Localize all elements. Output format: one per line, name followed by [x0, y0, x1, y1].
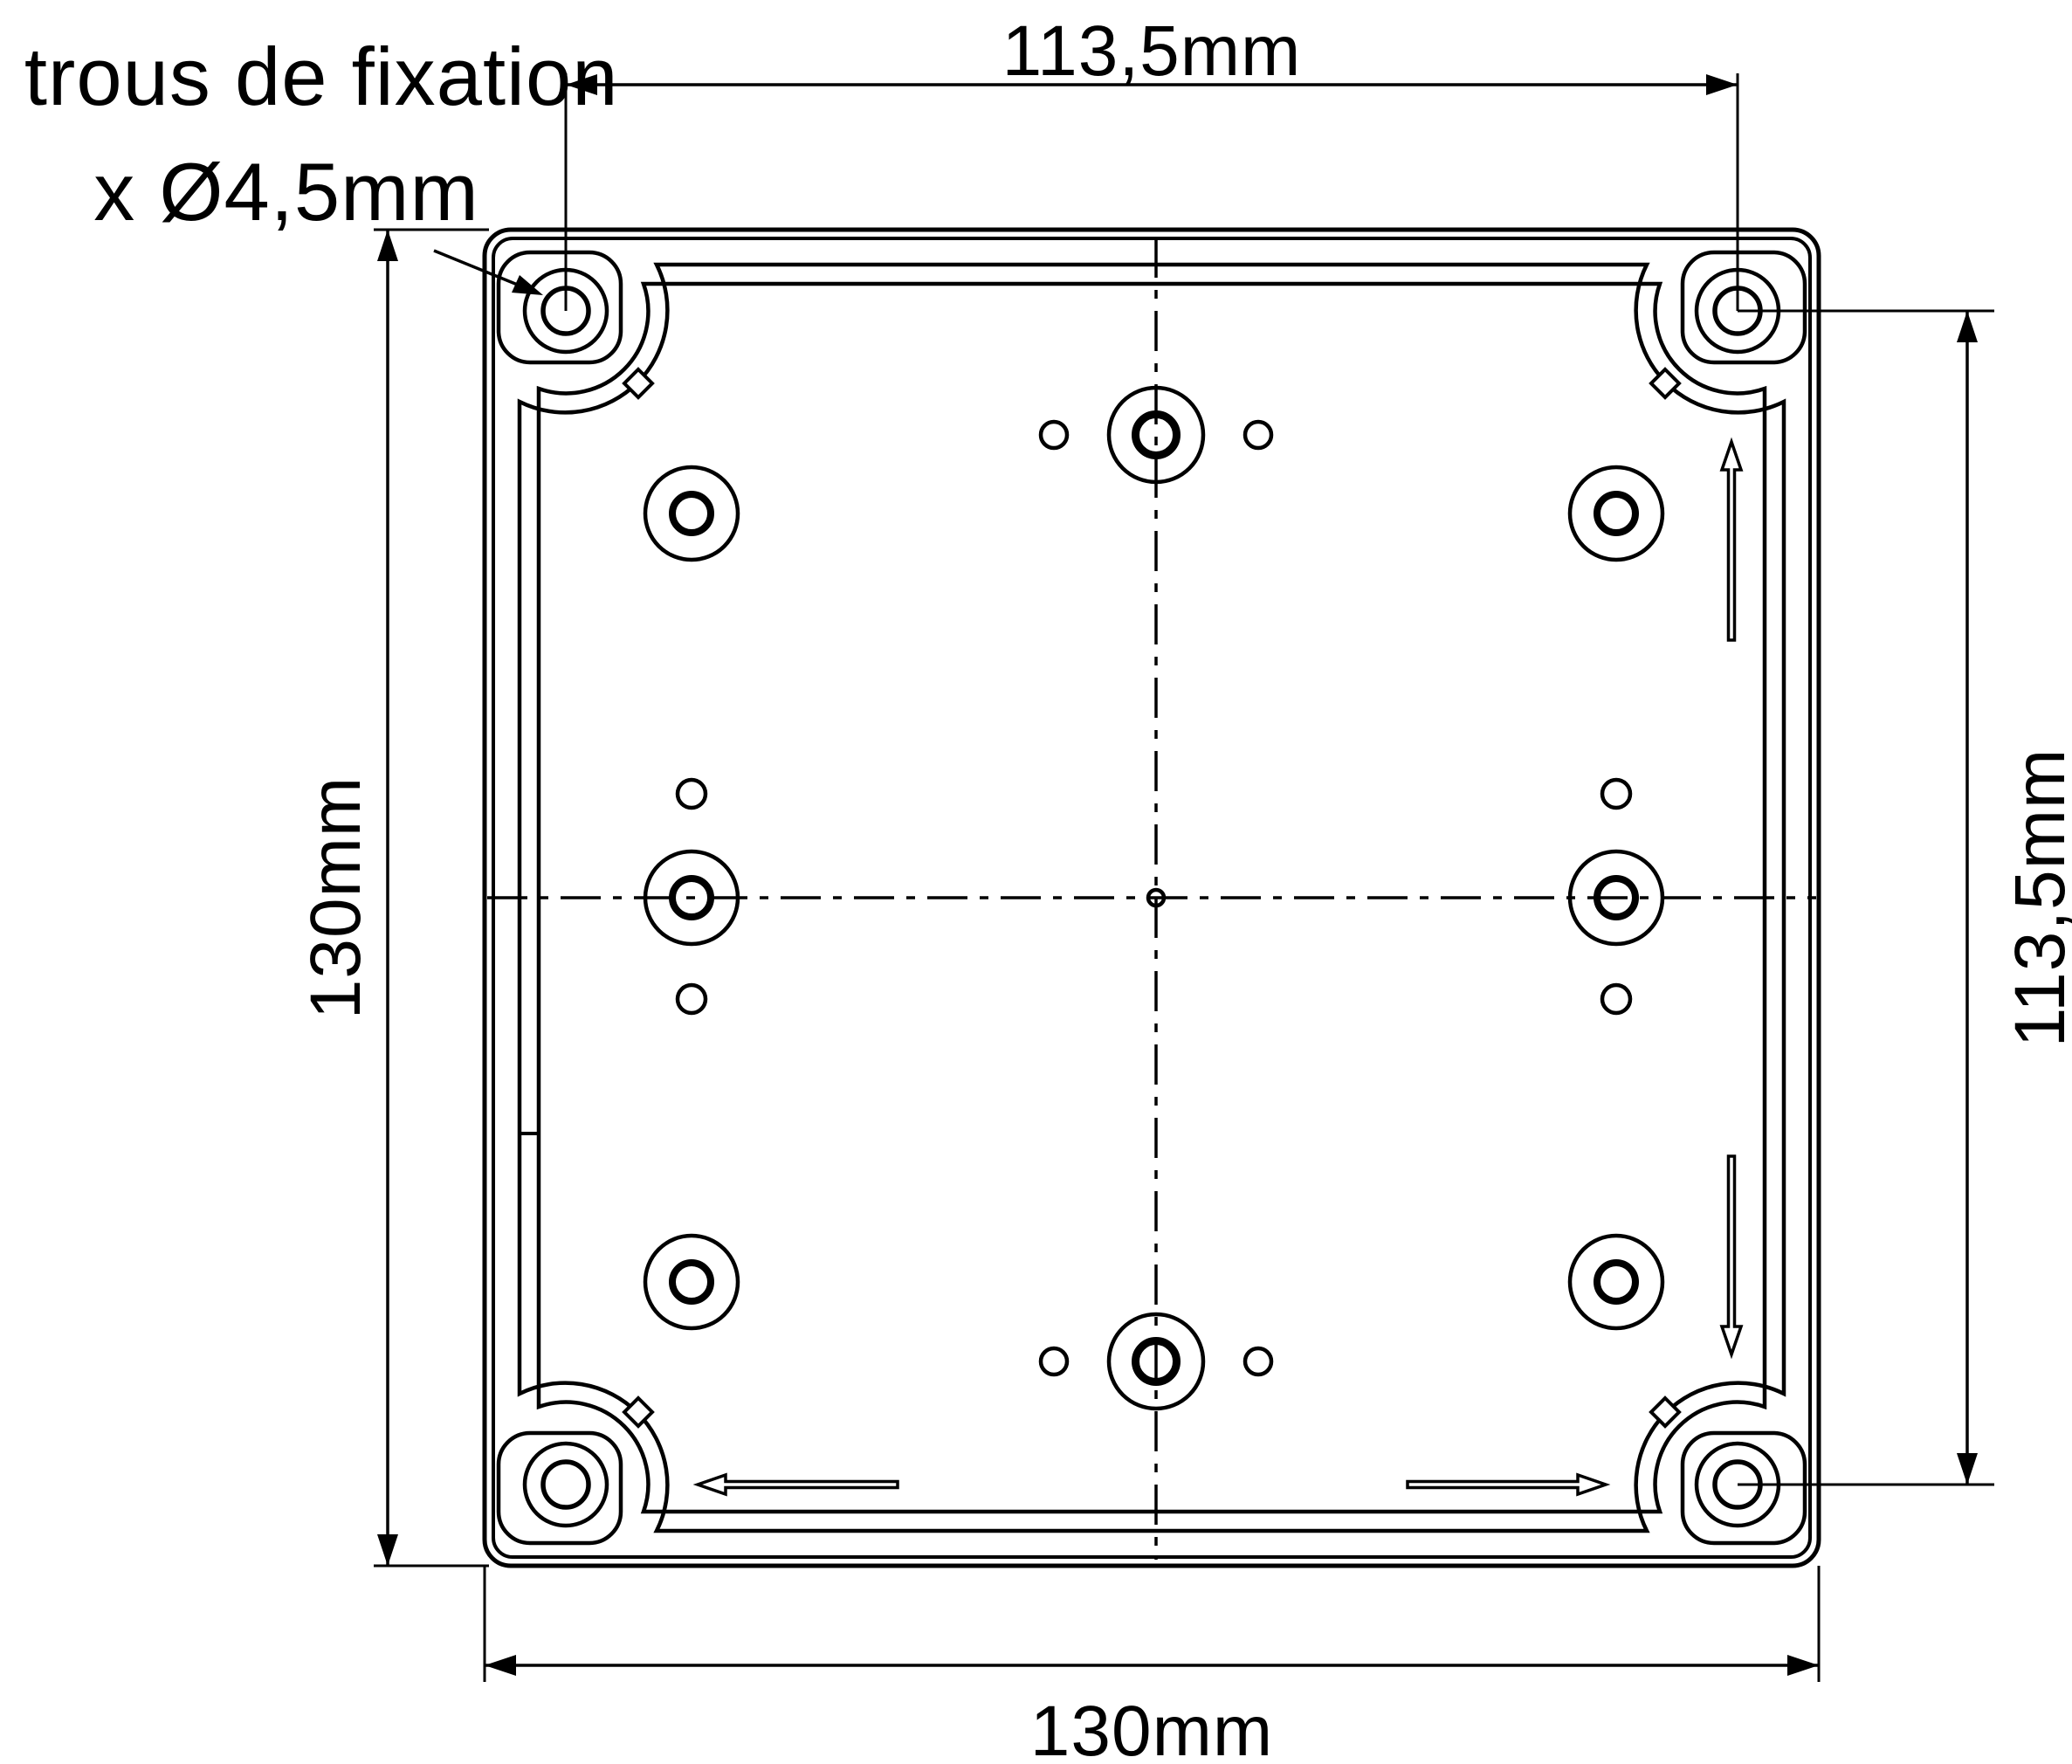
- screw-hole-inner: [543, 1462, 589, 1507]
- dimension-arrow-up-icon: [1957, 311, 1978, 342]
- corner-pocket-top-left: [499, 252, 652, 397]
- corner-pocket-bottom-left: [499, 1398, 652, 1543]
- boss-hole: [1570, 467, 1662, 560]
- note-line-1: 4 trous de fixation: [0, 31, 619, 122]
- pilot-hole: [1041, 1348, 1067, 1375]
- left-arrow-icon: [698, 1475, 898, 1494]
- enclosure-dimension-drawing: 113,5mm 130mm 113,5mm 130mm 4 trous de f…: [0, 0, 2072, 1764]
- dimension-left: 130mm: [296, 230, 489, 1566]
- screw-hole-outer: [525, 1444, 607, 1526]
- dimension-right-label: 113,5mm: [2000, 748, 2072, 1048]
- pilot-hole: [1041, 422, 1067, 448]
- dimension-top-label: 113,5mm: [1002, 11, 1302, 91]
- technical-drawing-page: 113,5mm 130mm 113,5mm 130mm 4 trous de f…: [0, 0, 2072, 1764]
- dimension-arrow-right-icon: [1706, 74, 1738, 95]
- up-arrow-icon: [1722, 442, 1741, 640]
- dimension-arrow-right-icon: [1787, 1655, 1819, 1676]
- fixing-holes-note: 4 trous de fixation x Ø4,5mm: [0, 31, 619, 295]
- dimension-arrow-down-icon: [1957, 1453, 1978, 1485]
- boss-hole: [645, 1236, 738, 1328]
- pilot-hole: [1245, 1348, 1271, 1375]
- dimension-arrow-left-icon: [485, 1655, 516, 1676]
- pilot-hole: [1602, 985, 1630, 1013]
- pilot-hole: [1245, 422, 1271, 448]
- dimension-arrow-down-icon: [377, 1534, 398, 1566]
- pilot-hole: [678, 780, 706, 808]
- pilot-hole: [678, 985, 706, 1013]
- corner-pocket-bottom-right: [1651, 1398, 1805, 1543]
- direction-arrows: [698, 442, 1741, 1494]
- down-arrow-icon: [1722, 1156, 1741, 1354]
- note-line-2: x Ø4,5mm: [93, 146, 479, 238]
- dimension-left-label: 130mm: [296, 776, 375, 1019]
- boss-hole: [645, 467, 738, 560]
- boss-hole: [1570, 1236, 1662, 1328]
- pilot-hole: [1602, 780, 1630, 808]
- dimension-bottom-label: 130mm: [1030, 1692, 1273, 1764]
- right-arrow-icon: [1408, 1475, 1606, 1494]
- dimension-bottom: 130mm: [485, 1566, 1819, 1764]
- corner-pocket-top-right: [1651, 252, 1805, 397]
- leader-line: [434, 251, 524, 287]
- centerlines: [487, 238, 1816, 1560]
